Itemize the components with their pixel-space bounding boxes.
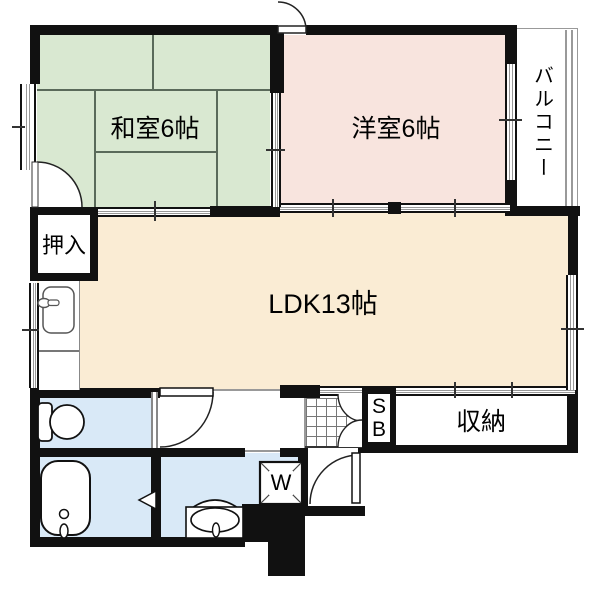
storage-label: 収納 (401, 404, 561, 436)
oshiire-inner: 押入 (38, 215, 90, 273)
door-leaf (352, 453, 360, 503)
door-tick (511, 382, 513, 398)
sliding-door-storage (320, 386, 575, 396)
wall-block (268, 540, 305, 576)
room-bathroom (37, 457, 151, 537)
door-arc (160, 392, 213, 447)
wall (30, 448, 245, 457)
door-tick (454, 382, 456, 398)
kitchen-counter (39, 281, 80, 390)
sliding-door-center-post (388, 202, 401, 214)
window-tick (561, 328, 584, 330)
sliding-door-washitsu-ldk (95, 207, 210, 217)
wall (280, 385, 320, 398)
wall-block (242, 504, 305, 542)
door-tick (266, 149, 285, 151)
window-kitchen (29, 283, 39, 388)
ldk-label: LDK13帖 (233, 284, 413, 318)
wall (505, 206, 580, 216)
wall (30, 388, 40, 547)
wall (298, 448, 308, 514)
room-toilet (37, 392, 151, 448)
oshiire-label: 押入 (42, 228, 86, 260)
partition-toilet-hall (151, 392, 158, 448)
shoe-box-inner: S B (368, 394, 390, 442)
window-tick (22, 329, 39, 331)
shoe-box: S B (362, 388, 396, 448)
wall (151, 448, 161, 547)
door-swing (160, 392, 213, 447)
window-tick (12, 126, 25, 128)
wall (210, 206, 280, 217)
tatami-line (216, 89, 218, 207)
tatami-line (95, 151, 217, 153)
door-opening-line (213, 389, 280, 391)
washer-label: W (269, 471, 293, 495)
tatami-line (152, 35, 154, 91)
kitchen-counter-divider (39, 350, 79, 352)
door-opening-line (245, 450, 280, 452)
door-tick (154, 201, 156, 221)
door-arc (310, 455, 359, 504)
wall (30, 25, 278, 35)
floor-plan: 押入 S B (0, 0, 612, 597)
door-swing (310, 455, 359, 504)
door-tick (454, 199, 456, 217)
shoe-box-label-s: S (372, 395, 386, 418)
door-tick (332, 199, 334, 217)
shoe-box-label-b: B (372, 418, 386, 441)
balcony-railing-line (571, 30, 573, 206)
entrance-tile-floor (305, 398, 362, 448)
window-ldk-east (566, 275, 578, 390)
wall (306, 25, 517, 35)
yoshitsu-label: 洋室6帖 (316, 111, 476, 143)
entrance-step-line (305, 446, 362, 448)
partition-hall-entrance (304, 398, 306, 448)
wall (303, 506, 365, 516)
wall (568, 216, 578, 275)
oshiire-closet: 押入 (30, 207, 98, 281)
washitsu-label: 和室6帖 (75, 111, 235, 143)
balcony-label: バルコニー (514, 52, 570, 192)
wall (30, 537, 245, 547)
tatami-line (94, 89, 96, 207)
wall (270, 25, 284, 93)
wall (30, 25, 40, 84)
